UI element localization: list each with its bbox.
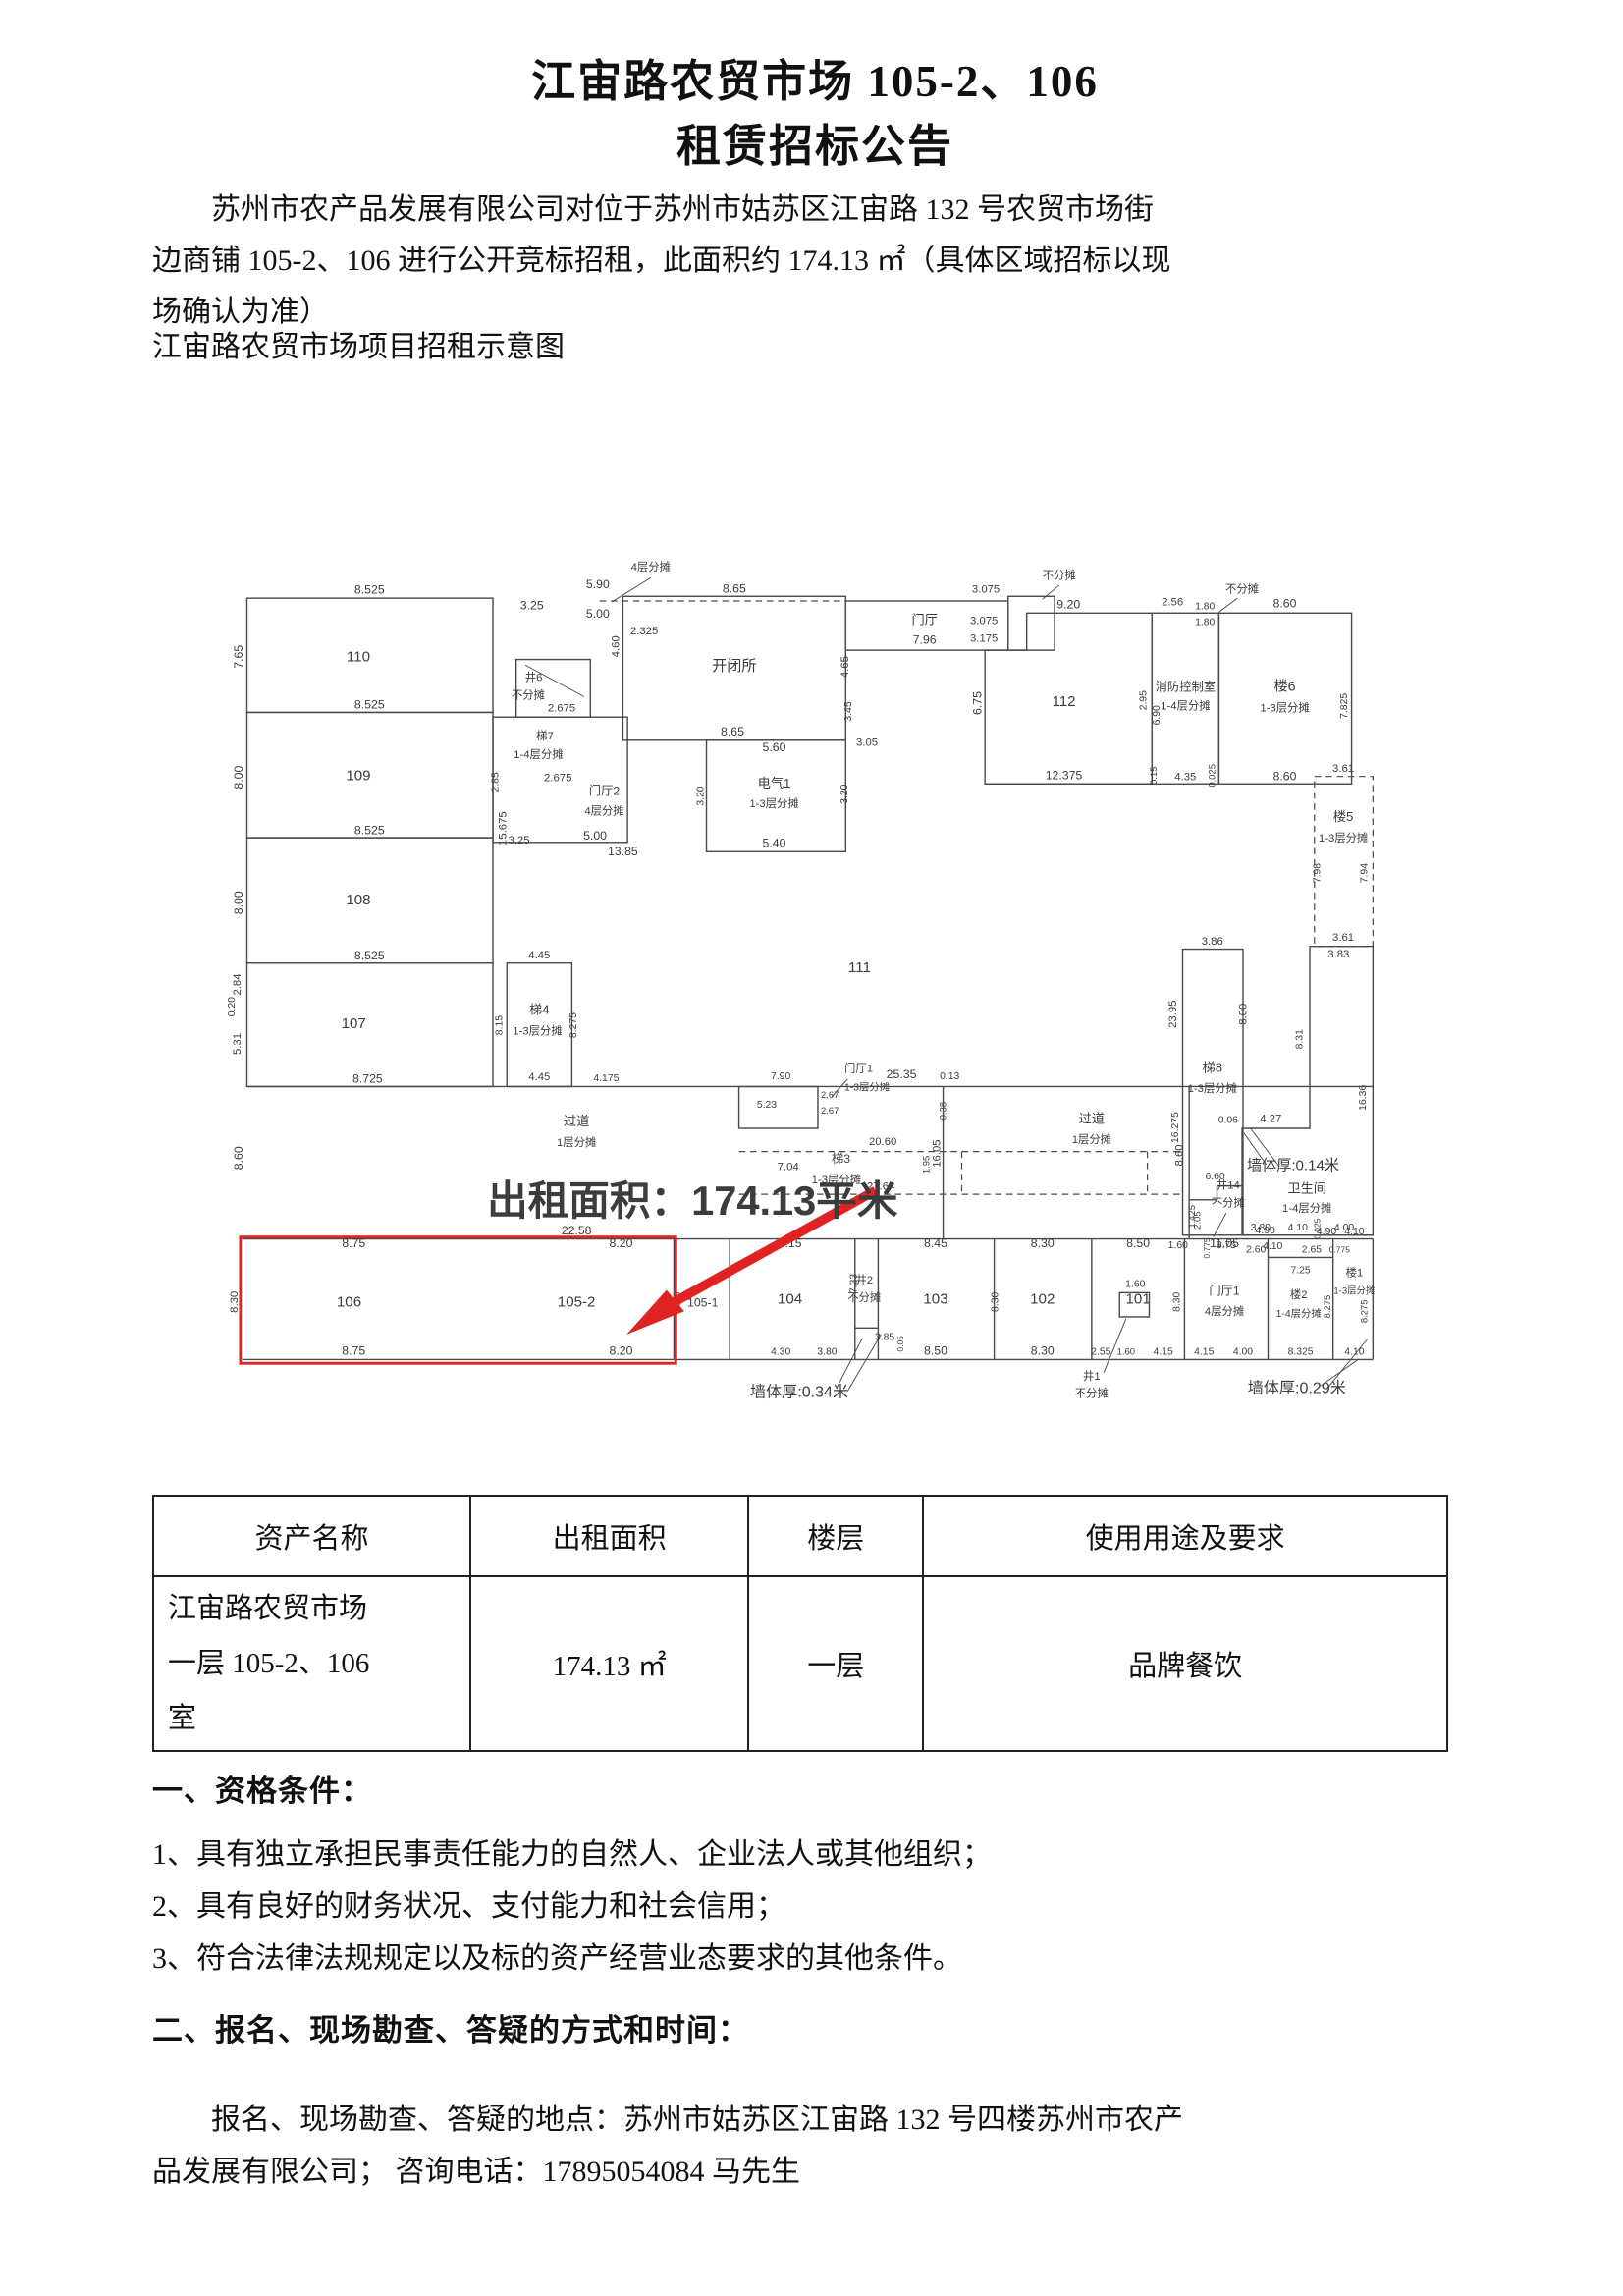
plan-label: 井1 [1083,1369,1101,1383]
plan-label: 16.36 [1358,1085,1369,1111]
plan-label: 井6 [525,670,543,683]
plan-label: 7.65 [232,645,245,669]
list-item: 1、具有独立承担民事责任能力的自然人、企业法人或其他组织； [152,1829,1478,1881]
plan-label: 门厅 [911,613,937,628]
plan-wall [247,963,494,1087]
plan-label: 5.00 [586,607,610,621]
plan-label: 1.95 [921,1156,932,1174]
plan-label: 8.65 [721,725,744,738]
plan-label: 1.60 [1168,1240,1188,1251]
plan-label: 109 [346,767,370,784]
plan-label: 梯8 [1202,1060,1222,1074]
plan-label: 8.725 [352,1072,383,1086]
plan-label: 3.25 [520,599,544,613]
plan-label: 4.90 [1256,1226,1275,1236]
plan-label: 20.60 [869,1136,896,1148]
plan-label: 4.27 [1260,1113,1281,1124]
plan-leader-line [1218,598,1237,612]
plan-label: 105-1 [687,1296,719,1310]
plan-label: 1-3层分摊 [1319,831,1368,845]
plan-label: 8.60 [1174,1144,1186,1166]
col-header-floor: 楼层 [748,1496,923,1576]
plan-label: 1层分摊 [557,1135,596,1149]
plan-label: 2.85 [491,772,502,792]
plan-label: 104 [778,1291,802,1308]
plan-label: 1.60 [1125,1280,1145,1290]
plan-wall [1152,613,1218,784]
plan-label: 12.375 [1046,769,1083,783]
plan-label: 8.30 [1172,1291,1183,1311]
plan-label: 4.45 [528,950,550,961]
list-item: 2、具有良好的财务状况、支付能力和社会信用； [152,1881,1478,1933]
plan-label: 8.30 [990,1291,1001,1311]
plan-label: 105-2 [558,1294,596,1311]
plan-label: 4.45 [528,1071,550,1083]
plan-label: 4.90 [1317,1227,1336,1237]
plan-label: 23.95 [1167,1001,1179,1028]
plan-label: 4.10 [1344,1347,1364,1358]
plan-label: 3.61 [1332,932,1354,944]
table-header-row: 资产名称 出租面积 楼层 使用用途及要求 [153,1496,1447,1576]
plan-label: 3.20 [839,784,850,803]
plan-label: 梯7 [536,730,554,742]
plan-label: 1-3层分摊 [1188,1081,1237,1095]
plan-label: 8.65 [723,581,746,595]
floorplan: 8.5257.651108.5258.0010915.6758.5258.001… [187,550,1380,1418]
plan-label: 0.15 [1149,767,1160,785]
plan-label: 8.60 [1273,597,1297,611]
plan-label: 8.50 [1126,1236,1150,1250]
plan-label: 3.075 [972,583,1000,595]
plan-label: 110 [347,648,370,665]
plan-label: 22.58 [562,1224,592,1237]
plan-label: 1-4层分摊 [1276,1307,1322,1320]
plan-label: 1.60 [1117,1347,1135,1358]
plan-label: 4.35 [1174,771,1196,783]
plan-label: 8.325 [1288,1347,1314,1358]
plan-label: 3.86 [1202,936,1223,948]
doc-title-line2: 租赁招标公告 [152,110,1478,174]
plan-label: 8.525 [354,582,385,596]
plan-label: 1.80 [1195,602,1215,613]
plan-label: 门厅2 [589,784,621,798]
plan-label: 3.05 [856,737,878,748]
plan-label: 不分摊 [1225,581,1259,595]
plan-label: 4.00 [1233,1347,1253,1358]
plan-wall [707,740,846,851]
plan-label: 墙体厚:0.34米 [750,1383,848,1400]
plan-label: 8.30 [229,1291,241,1313]
plan-label: 4.15 [1154,1347,1173,1358]
asset-table: 资产名称 出租面积 楼层 使用用途及要求 江宙路农贸市场 一层 105-2、10… [152,1495,1448,1752]
plan-label: 楼2 [1290,1287,1308,1301]
cell-asset-name: 江宙路农贸市场 一层 105-2、106 室 [153,1576,470,1751]
plan-label: 卫生间 [1287,1180,1326,1195]
plan-label: 过道 [1079,1111,1105,1125]
plan-label: 8.45 [924,1236,947,1250]
plan-label: 2.67 [821,1106,839,1117]
plan-label: 11.05 [1210,1236,1239,1250]
plan-label: 111 [848,959,871,976]
plan-label: 1-4层分摊 [1161,699,1210,713]
plan-label: 8.15 [495,1015,506,1035]
plan-label: 5.23 [757,1100,777,1111]
plan-label: 楼1 [1346,1265,1364,1279]
plan-label: 7.25 [1290,1266,1310,1277]
plan-label: 4层分摊 [1205,1304,1244,1318]
section2-body: 报名、现场勘查、答疑的地点：苏州市姑苏区江宙路 132 号四楼苏州市农产 品发展… [152,2094,1478,2198]
plan-leader-line [1104,1319,1126,1373]
plan-label: 15.675 [497,811,509,846]
plan-label: 107 [342,1015,366,1032]
plan-label: 9.20 [1056,598,1080,612]
plan-label: 不分摊 [1212,1195,1245,1209]
intro-line: 苏州市农产品发展有限公司对位于苏州市姑苏区江宙路 132 号农贸市场街 [152,185,1478,236]
plan-label: 2.60 [1246,1245,1266,1256]
plan-label: 墙体厚:0.29米 [1248,1379,1346,1396]
plan-label: 不分摊 [847,1290,881,1304]
plan-label: 3.45 [843,701,854,721]
plan-label: 4.30 [771,1347,790,1358]
plan-label: 门厅1 [1209,1283,1240,1297]
plan-label: 8.20 [610,1236,633,1250]
plan-label: 电气1 [758,776,791,791]
list-item: 3、符合法律法规规定以及标的资产经营业态要求的其他条件。 [152,1933,1478,1985]
plan-label: 门厅1 [844,1061,873,1074]
plan-label: 8.31 [1294,1029,1305,1049]
plan-label: 3.20 [696,786,707,805]
plan-label: 4.175 [593,1073,619,1084]
plan-label: 开闭所 [712,658,756,675]
plan-label: 8.50 [924,1344,947,1358]
plan-label: 0.20 [227,997,238,1016]
cell-rent-area: 174.13 ㎡ [470,1576,748,1751]
intro-line: 边商铺 105-2、106 进行公开竞标招租，此面积约 174.13 ㎡（具体区… [152,236,1478,287]
plan-label: 7.90 [771,1071,790,1082]
plan-label: 2.325 [630,626,658,637]
plan-label: 2.95 [1139,690,1150,710]
section2-line: 报名、现场勘查、答疑的地点：苏州市姑苏区江宙路 132 号四楼苏州市农产 [152,2094,1478,2146]
plan-label: 8.30 [1031,1344,1055,1358]
plan-label: 1层分摊 [1072,1132,1111,1146]
plan-label: 0.775 [1329,1245,1351,1255]
plan-label: 2.67 [821,1090,839,1101]
col-header-usage: 使用用途及要求 [923,1496,1447,1576]
plan-label: 3.85 [875,1333,894,1343]
col-header-rent-area: 出租面积 [470,1496,748,1576]
plan-leader-line [1214,1213,1226,1237]
plan-label: 16.05 [932,1139,944,1167]
section1-items: 1、具有独立承担民事责任能力的自然人、企业法人或其他组织； 2、具有良好的财务状… [152,1829,1478,1985]
plan-label: 楼5 [1333,809,1354,824]
plan-label: 不分摊 [1043,568,1076,581]
plan-label: 井14 [1217,1177,1240,1191]
plan-label: 7.04 [778,1162,799,1174]
plan-label: 1-3层分摊 [1260,701,1309,715]
plan-label: 3.175 [970,633,998,645]
plan-label: 5.00 [583,829,607,843]
plan-label: 0.13 [940,1071,959,1082]
plan-label: 3.83 [1327,949,1349,960]
plan-label: 3.80 [817,1347,837,1358]
plan-label: 5.40 [763,837,786,850]
plan-leader-line [837,1339,862,1389]
plan-label: 8.275 [1323,1295,1333,1319]
rented-area-label: 出租面积：174.13平米 [487,1177,898,1224]
section1-heading: 一、资格条件： [152,1766,372,1810]
plan-label: 8.00 [232,891,245,914]
plan-label: 16.275 [1170,1112,1181,1143]
plan-label: 过道 [564,1114,589,1128]
plan-label: 8.525 [354,823,385,837]
plan-label: 0.06 [1218,1115,1238,1125]
section2-heading: 二、报名、现场勘查、答疑的方式和时间： [152,2005,749,2050]
plan-label: 消防控制室 [1156,680,1216,694]
plan-label: 3.25 [508,835,529,847]
plan-label: 5.90 [586,577,610,591]
cell-floor: 一层 [748,1576,923,1751]
plan-label: 4.65 [839,656,851,678]
plan-label: 8.525 [354,698,385,712]
plan-label: 2.05 [1192,1211,1203,1229]
plan-label: 1.80 [1195,618,1215,629]
plan-label: 112 [1052,693,1075,710]
plan-dashed-wall [1315,777,1374,947]
plan-label: 墙体厚:0.14米 [1247,1158,1339,1175]
plan-label: 4层分摊 [631,560,671,574]
plan-label: 4.60 [611,635,622,657]
plan-label: 8.00 [1238,1004,1250,1025]
plan-label: 2.55 [1091,1347,1110,1358]
floorplan-svg: 8.5257.651108.5258.0010915.6758.5258.001… [187,550,1380,1418]
plan-label: 103 [923,1291,947,1308]
plan-label: 8.30 [1031,1236,1055,1250]
plan-label: 0.38 [938,1102,948,1120]
plan-label: 102 [1030,1291,1055,1308]
plan-label: 7.825 [1339,693,1350,719]
plan-label: 梯3 [832,1152,850,1166]
table-row: 江宙路农贸市场 一层 105-2、106 室 174.13 ㎡ 一层 品牌餐饮 [153,1576,1447,1751]
col-header-asset-name: 资产名称 [153,1496,470,1576]
plan-label: 8.75 [342,1344,365,1358]
plan-wall [739,1086,818,1128]
plan-label: 2.56 [1162,597,1183,609]
plan-label: 8.20 [610,1344,633,1358]
plan-label: 5.60 [763,740,786,754]
plan-label: 1-3层分摊 [749,796,798,810]
plan-label: 4.15 [1194,1347,1214,1358]
cell-usage: 品牌餐饮 [923,1576,1447,1751]
plan-label: 楼6 [1273,680,1295,695]
plan-label: 1-3层分摊 [844,1080,890,1093]
plan-label: 0.025 [1208,764,1218,788]
plan-label: 101 [1126,1291,1151,1308]
plan-label: 不分摊 [1075,1386,1109,1399]
plan-label: 5.31 [232,1033,243,1055]
plan-label: 1-3层分摊 [1333,1285,1376,1296]
plan-label: 2.65 [1302,1245,1322,1256]
plan-label: 8.00 [232,766,245,790]
plan-label: 井2 [855,1273,873,1286]
plan-wall [1008,596,1055,650]
plan-label: 4.10 [1288,1223,1308,1233]
plan-label: 4层分摊 [584,803,623,817]
plan-label: 0.05 [895,1336,905,1352]
plan-label: 1-3层分摊 [513,1024,562,1038]
plan-wall [1218,613,1351,784]
plan-label: 3.61 [1332,763,1354,775]
plan-label: 13.85 [608,845,638,858]
plan-label: 2.84 [232,973,243,995]
plan-label: 7.98 [1312,863,1323,883]
document-page: 江宙路农贸市场 105-2、106 租赁招标公告 苏州市农产品发展有限公司对位于… [0,0,1623,2296]
plan-label: 3.075 [970,616,998,628]
plan-label: 不分摊 [512,687,545,701]
plan-label: 6.75 [970,691,984,715]
intro-paragraph: 苏州市农产品发展有限公司对位于苏州市姑苏区江宙路 132 号农贸市场街 边商铺 … [152,185,1478,338]
plan-label: 2.675 [544,772,571,784]
plan-label: 7.96 [913,632,937,646]
plan-label: 106 [337,1294,361,1311]
diagram-caption: 江宙路农贸市场项目招租示意图 [152,322,1478,365]
plan-label: 4.10 [1344,1227,1364,1237]
plan-label: 6.90 [1152,705,1163,725]
plan-label: 2.675 [548,703,575,715]
plan-label: 8.75 [342,1236,365,1250]
plan-label: 梯4 [529,1003,550,1017]
plan-label: 25.35 [887,1067,917,1081]
plan-label: 8.60 [1273,769,1297,783]
plan-label: 108 [346,892,370,908]
plan-label: 8.525 [354,949,385,962]
section2-line: 品发展有限公司； 咨询电话：17895054084 马先生 [152,2146,1478,2198]
plan-label: 7.94 [1360,863,1371,883]
plan-label: 8.60 [232,1146,245,1170]
plan-label: 8.275 [568,1012,579,1038]
doc-title-line1: 江宙路农贸市场 105-2、106 [152,45,1478,109]
plan-label: 1-4层分摊 [514,747,563,761]
plan-label: 1-4层分摊 [1282,1201,1331,1215]
plan-label: 8.275 [1360,1299,1371,1323]
plan-leader-line [612,577,651,602]
